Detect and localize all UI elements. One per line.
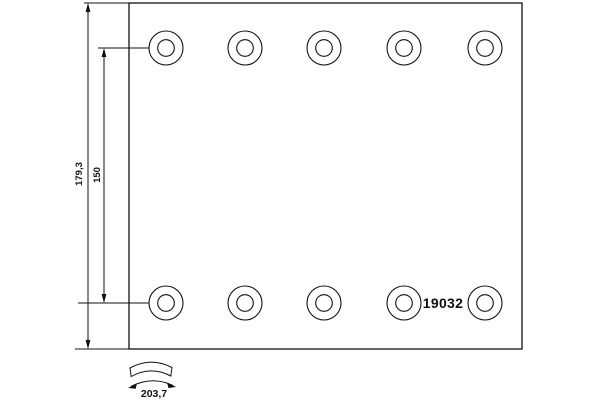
rivet-hole-circle: [307, 31, 341, 65]
technical-drawing-canvas: 179,3 150 19032 203,7: [0, 0, 600, 400]
arrowhead-right-icon: [167, 382, 176, 388]
rivet-hole-circle: [149, 31, 183, 65]
arrowhead-left-icon: [128, 383, 137, 389]
rivet-hole-circle: [396, 295, 413, 312]
rivet-hole-circle: [316, 40, 333, 57]
rivet-hole-circle: [477, 295, 494, 312]
brake-lining-drawing: 179,3 150 19032 203,7: [0, 0, 600, 400]
arrowhead-down-icon: [102, 294, 107, 303]
part-number-label: 19032: [423, 295, 463, 311]
dimension-label-hole-rows: 150: [92, 167, 103, 183]
rivet-hole-circle: [387, 286, 421, 320]
dimension-label-arc-width: 203,7: [141, 388, 167, 400]
dimension-label-total-height: 179,3: [74, 162, 85, 186]
rivet-hole-circle: [387, 31, 421, 65]
curved-lining-section-icon: [130, 362, 172, 376]
rivet-hole-circle: [158, 40, 175, 57]
rivet-hole-circle: [477, 40, 494, 57]
arrowhead-up-icon: [102, 48, 107, 57]
arrowhead-down-icon: [86, 340, 91, 349]
rivet-hole-circle: [228, 286, 262, 320]
rivet-hole-circle: [228, 31, 262, 65]
arc-width-arrow-icon: [131, 381, 173, 387]
rivet-hole-circle: [468, 31, 502, 65]
rivet-hole-circle: [316, 295, 333, 312]
rivet-hole-circle: [237, 295, 254, 312]
rivet-hole-circle: [158, 295, 175, 312]
rivet-hole-circle: [237, 40, 254, 57]
rivet-hole-circle: [149, 286, 183, 320]
rivet-hole-circle: [396, 40, 413, 57]
rivet-hole-circle: [468, 286, 502, 320]
rivet-holes: [149, 31, 502, 320]
arrowhead-up-icon: [86, 3, 91, 12]
rivet-hole-circle: [307, 286, 341, 320]
